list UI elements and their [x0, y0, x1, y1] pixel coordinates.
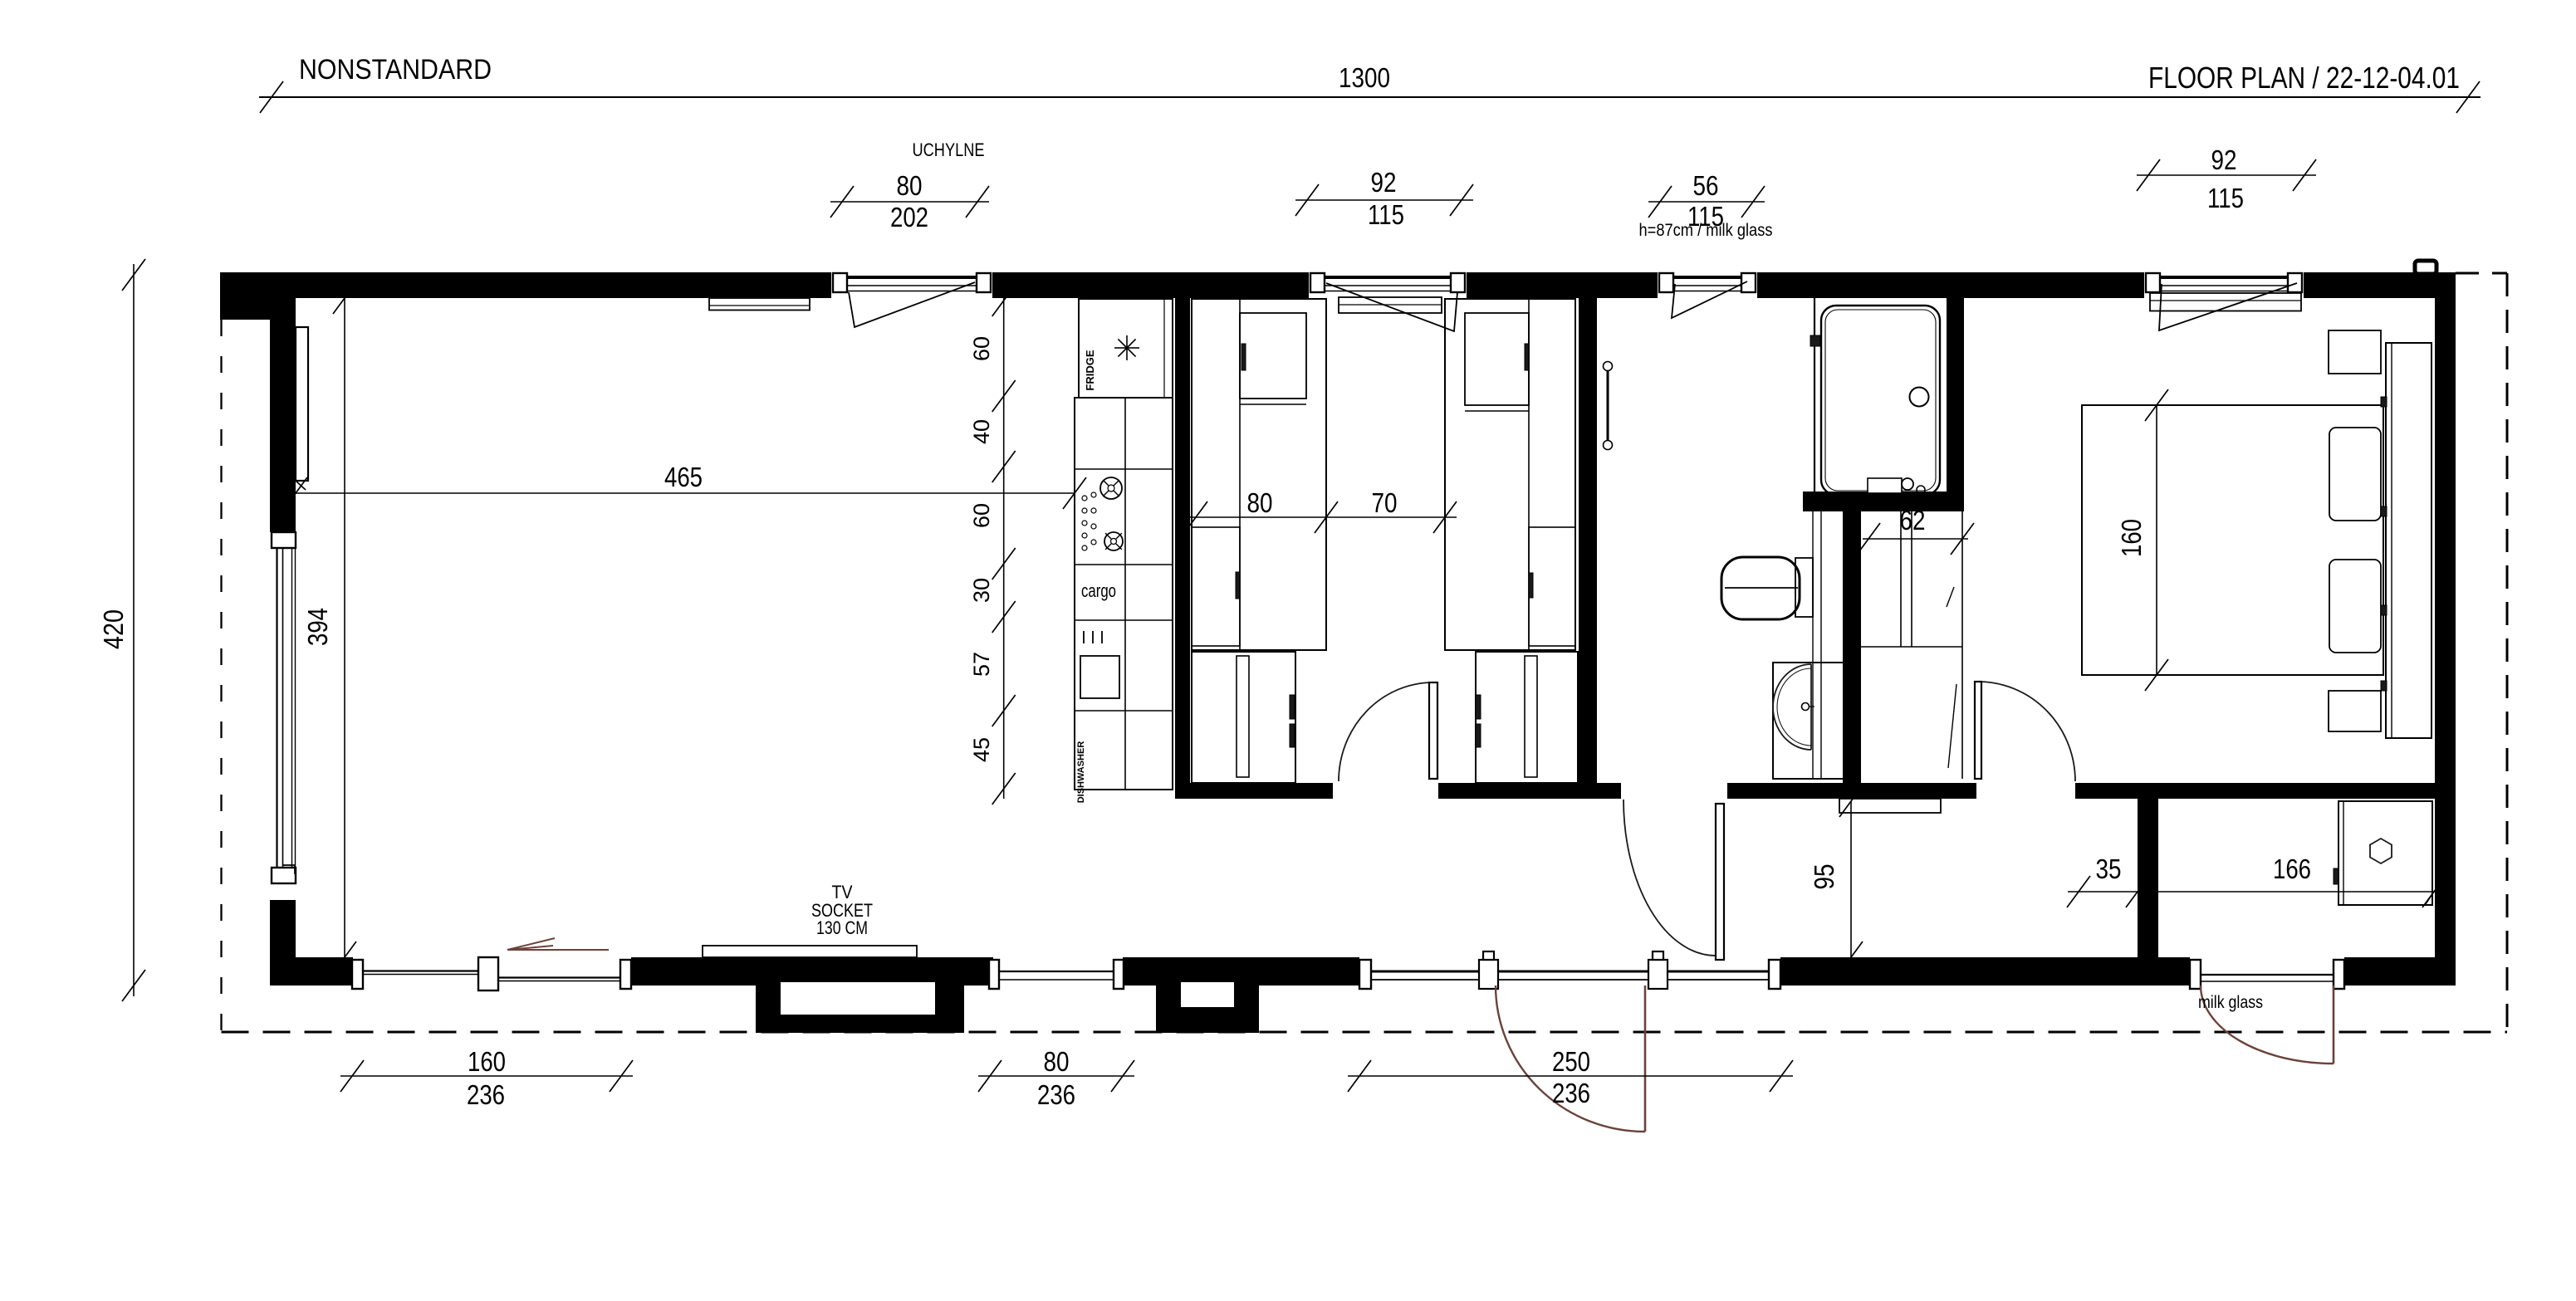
svg-text:92: 92	[1371, 167, 1397, 198]
svg-text:30: 30	[969, 578, 994, 603]
svg-text:35: 35	[2096, 853, 2122, 884]
svg-text:NONSTANDARD: NONSTANDARD	[299, 54, 492, 86]
svg-text:FLOOR PLAN / 22-12-04.01: FLOOR PLAN / 22-12-04.01	[2148, 61, 2460, 95]
svg-text:57: 57	[969, 652, 994, 677]
svg-text:80: 80	[897, 170, 923, 201]
svg-text:DISHWASHER: DISHWASHER	[1076, 741, 1086, 804]
svg-text:60: 60	[969, 503, 994, 528]
svg-text:UCHYLNE: UCHYLNE	[913, 139, 985, 160]
svg-text:420: 420	[98, 609, 129, 649]
svg-text:62: 62	[1900, 505, 1926, 536]
svg-text:115: 115	[2207, 183, 2244, 213]
svg-text:cargo: cargo	[1081, 580, 1116, 601]
svg-text:250: 250	[1552, 1046, 1590, 1077]
svg-text:236: 236	[467, 1079, 505, 1110]
svg-text:166: 166	[2273, 853, 2311, 884]
svg-text:92: 92	[2211, 144, 2237, 175]
svg-text:70: 70	[1372, 487, 1398, 518]
svg-text:160: 160	[2116, 519, 2147, 557]
svg-text:56: 56	[1693, 170, 1719, 201]
svg-text:1300: 1300	[1339, 62, 1390, 93]
svg-text:80: 80	[1247, 487, 1273, 518]
svg-text:40: 40	[969, 419, 994, 444]
svg-text:milk glass: milk glass	[2198, 993, 2263, 1012]
svg-text:394: 394	[302, 608, 333, 646]
svg-text:236: 236	[1037, 1079, 1075, 1110]
svg-text:465: 465	[664, 462, 703, 492]
svg-text:202: 202	[890, 202, 928, 232]
svg-text:60: 60	[969, 336, 994, 361]
svg-text:FRIDGE: FRIDGE	[1084, 350, 1096, 390]
svg-text:h=87cm / milk glass: h=87cm / milk glass	[1639, 221, 1773, 240]
svg-text:45: 45	[969, 737, 994, 762]
svg-text:80: 80	[1044, 1046, 1070, 1077]
svg-text:95: 95	[1809, 864, 1839, 890]
svg-text:160: 160	[468, 1046, 506, 1077]
svg-text:236: 236	[1552, 1078, 1590, 1108]
svg-text:130 CM: 130 CM	[816, 917, 868, 938]
svg-text:115: 115	[1368, 199, 1404, 230]
